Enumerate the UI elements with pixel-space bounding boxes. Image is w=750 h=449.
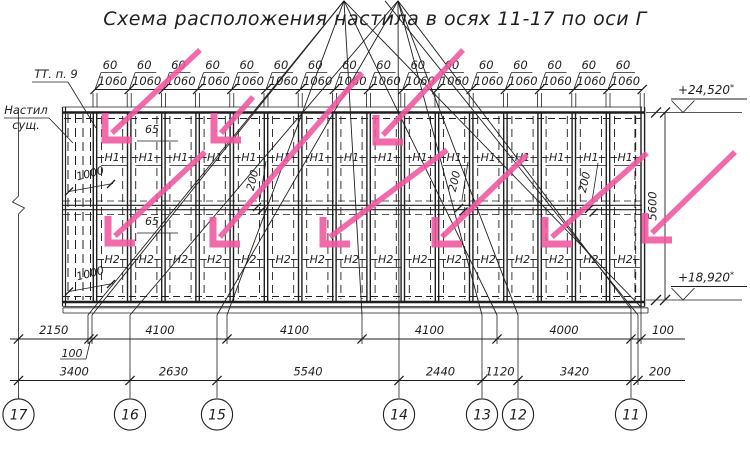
axis-bubbles: 17161514131211 [3, 399, 647, 430]
dim-text: 4100 [415, 323, 444, 337]
dim-text: Н1 [617, 151, 632, 164]
dim-text: 60 [274, 58, 289, 72]
dim-text: Н2 [139, 253, 154, 266]
dim-text: 1120 [485, 365, 514, 379]
dim-text: 1060 [200, 74, 229, 88]
dim-text: 13 [473, 408, 491, 424]
dim-text: Н2 [104, 253, 119, 266]
dim-text: Н2 [310, 253, 325, 266]
dim-text: 200 [576, 171, 593, 194]
annotation-arrow [542, 153, 648, 248]
dim-text: Н2 [173, 253, 188, 266]
dim-text: 60 [479, 58, 494, 72]
dim-text: 4100 [145, 323, 174, 337]
right-annotations: 5600+24,520*+18,920* [646, 83, 748, 305]
dim-text: Н1 [481, 151, 496, 164]
dim-text: 1060 [577, 74, 606, 88]
dim-text: 1060 [474, 74, 503, 88]
dim-text: 100 [62, 347, 83, 360]
annotation-arrow [105, 152, 206, 247]
dim-text: 3420 [560, 365, 589, 379]
dim-text: 200 [649, 365, 671, 379]
dim-text: 1060 [132, 74, 161, 88]
dim-text: 60 [513, 58, 528, 72]
dim-text: Н1 [583, 151, 598, 164]
dim-text: 16 [121, 408, 139, 424]
dim-text: Н2 [515, 253, 530, 266]
dim-text: Н1 [241, 151, 256, 164]
dim-text: 1060 [508, 74, 537, 88]
dim-text: Н2 [207, 253, 222, 266]
dim-text: Н1 [104, 151, 119, 164]
axis-bubble: 13 [466, 399, 497, 430]
axis-bubble: 11 [615, 399, 646, 430]
dim-text: 60 [581, 58, 596, 72]
drawing-title: Схема расположения настила в осях 11-17 … [0, 8, 750, 30]
dim-text: 5540 [293, 365, 322, 379]
top-dimension-row: 6010606010606010606010606010606010606010… [90, 58, 646, 108]
dim-text: 1060 [303, 74, 332, 88]
dim-text: 1060 [235, 74, 264, 88]
drawing-sheet: Схема расположения настила в осях 11-17 … [0, 0, 750, 449]
dim-text: 100 [652, 323, 674, 337]
dim-text: ТТ. п. 9 [34, 67, 78, 81]
dim-text: сущ. [12, 118, 40, 132]
left-annotations: ТТ. п. 9Настилсущ. [4, 67, 96, 143]
dim-text: 17 [10, 408, 28, 424]
dim-text: Н1 [139, 151, 154, 164]
dim-text: +18,920* [678, 271, 734, 285]
dim-text: 60 [239, 58, 254, 72]
dim-text: 60 [376, 58, 391, 72]
dim-text: Н2 [378, 253, 393, 266]
dim-text: Н2 [617, 253, 632, 266]
annotation-arrow [432, 155, 528, 248]
dim-text: 4100 [280, 323, 309, 337]
axis-bubble: 12 [502, 399, 533, 430]
axis-bubble: 14 [383, 399, 414, 430]
dim-text: Н2 [412, 253, 427, 266]
dim-text: Н1 [173, 151, 188, 164]
axis-bubble: 17 [3, 399, 34, 430]
dim-text: 1060 [371, 74, 400, 88]
dim-text: 60 [103, 58, 118, 72]
dim-text: 65 [145, 215, 159, 228]
axis-bubble: 16 [114, 399, 145, 430]
dim-text: Н2 [481, 253, 496, 266]
dim-text: Н1 [549, 151, 564, 164]
dim-text: Н2 [446, 253, 461, 266]
dim-text: 15 [208, 408, 226, 424]
dim-text: Н1 [310, 151, 325, 164]
dim-text: 60 [342, 58, 357, 72]
deck-panels [62, 107, 648, 313]
dim-text: Настил [4, 103, 48, 117]
dim-text: 1060 [542, 74, 571, 88]
dim-text: 60 [137, 58, 152, 72]
dim-text: Н2 [549, 253, 564, 266]
dim-text: 2150 [39, 323, 68, 337]
dim-text: 2440 [426, 365, 455, 379]
dim-text: 1060 [98, 74, 127, 88]
dim-text: 11 [622, 408, 640, 424]
dim-text: 1000 [75, 264, 105, 283]
dim-text: Н2 [344, 253, 359, 266]
dim-text: +24,520* [678, 83, 734, 97]
drawing-canvas: 6010606010606010606010606010606010606010… [0, 0, 750, 449]
dim-text: 60 [616, 58, 631, 72]
dim-text: Н1 [344, 151, 359, 164]
axis-bubble: 15 [201, 399, 232, 430]
dim-text: 60 [547, 58, 562, 72]
dim-text: 1000 [75, 164, 105, 183]
dim-text: 12 [509, 408, 527, 424]
dim-text: 60 [205, 58, 220, 72]
dim-text: Н2 [275, 253, 290, 266]
dim-text: 3400 [60, 365, 89, 379]
dim-text: 4000 [549, 323, 578, 337]
dim-text: 1060 [611, 74, 640, 88]
dim-text: 14 [390, 408, 408, 424]
dim-text: 2630 [159, 365, 188, 379]
dim-text: Н1 [378, 151, 393, 164]
dim-text: 65 [145, 123, 159, 136]
annotation-arrow [320, 150, 448, 248]
annotation-arrow [210, 73, 363, 248]
